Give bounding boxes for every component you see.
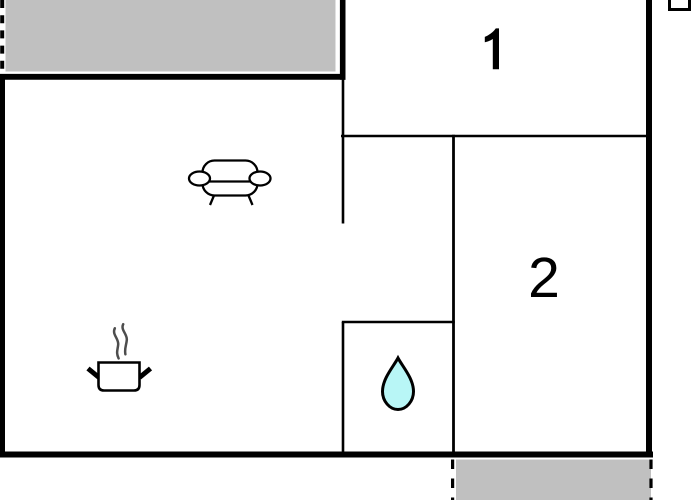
svg-text:2: 2 (528, 246, 560, 310)
